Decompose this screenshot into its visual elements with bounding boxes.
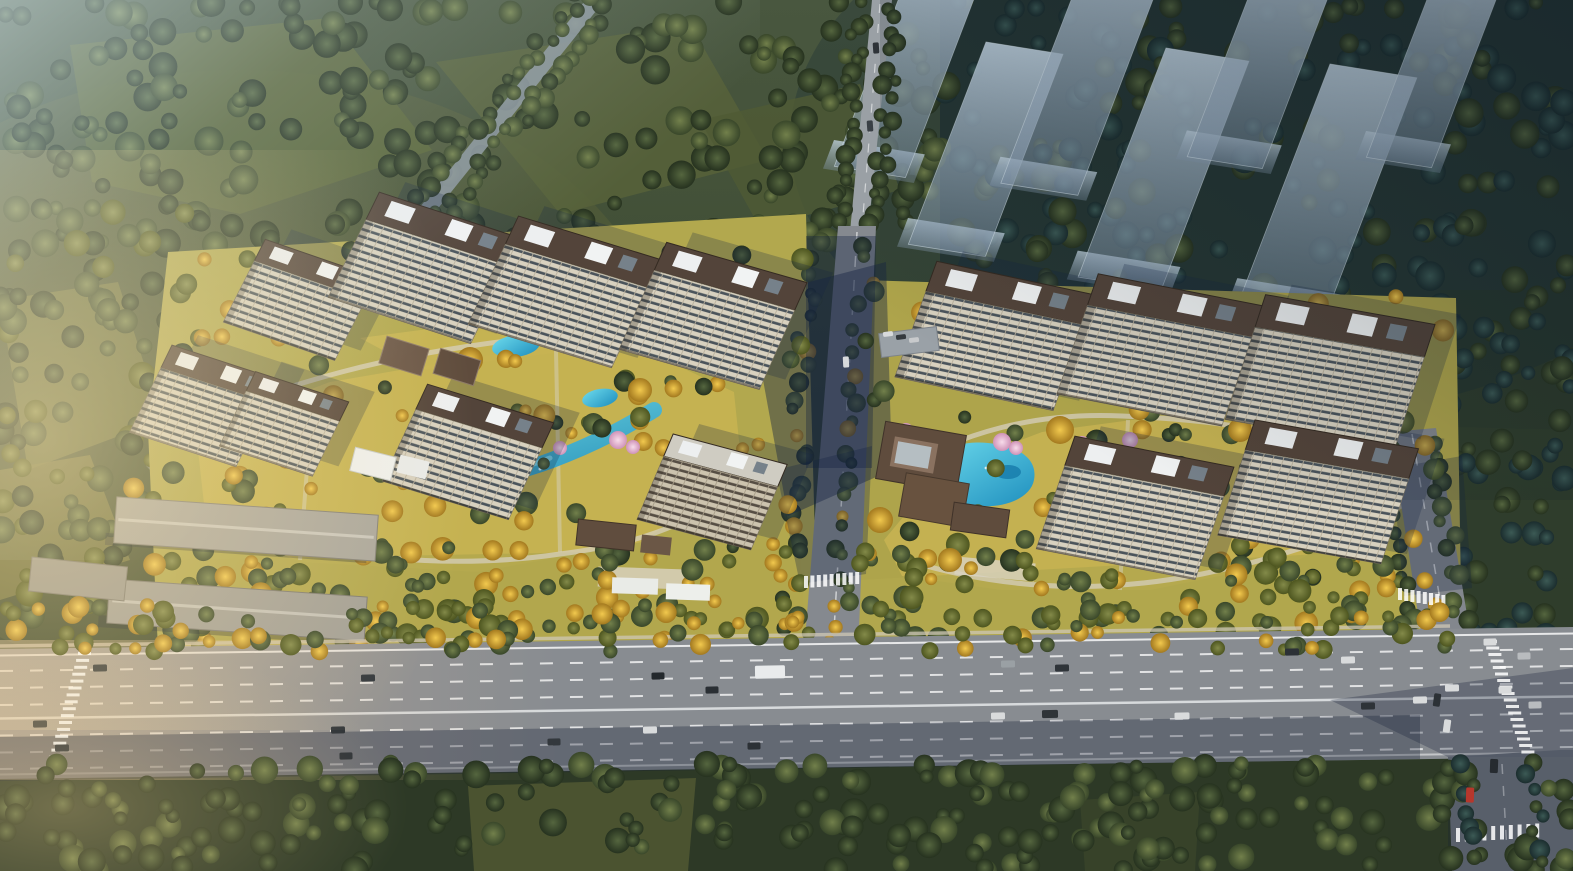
gold-tree (867, 507, 893, 533)
tree (1528, 783, 1541, 796)
tree (828, 600, 841, 613)
tree (433, 806, 452, 825)
crosswalk-stripe (1417, 591, 1421, 603)
tree (1512, 602, 1533, 623)
car (991, 712, 1005, 719)
crosswalk-stripe (1429, 593, 1433, 605)
tree (957, 640, 974, 657)
tree (1172, 757, 1199, 784)
tree (776, 596, 792, 612)
tree (656, 602, 677, 623)
tree (759, 145, 784, 170)
crosswalk-stripe (1506, 705, 1519, 708)
tree (1360, 809, 1386, 835)
car (547, 738, 560, 745)
tree (1210, 641, 1225, 656)
tree (1528, 565, 1544, 581)
tree (1230, 584, 1249, 603)
dark-topright (880, 0, 1573, 500)
tree (779, 147, 805, 173)
tree (782, 58, 799, 75)
tree (1536, 809, 1549, 822)
tree (1105, 568, 1119, 582)
tree (626, 833, 640, 847)
car (651, 672, 664, 679)
tree (854, 624, 876, 646)
tree (1500, 522, 1522, 544)
tree (1359, 772, 1377, 790)
car (843, 356, 850, 367)
tree (820, 20, 842, 42)
crosswalk-stripe (1513, 725, 1526, 728)
tree (708, 595, 722, 609)
car (1445, 684, 1459, 691)
tree (1137, 837, 1160, 860)
tree (1451, 754, 1470, 773)
tree (681, 559, 703, 581)
crosswalk-stripe (1491, 660, 1504, 663)
tree (775, 759, 799, 783)
tree (1533, 499, 1549, 515)
tree (851, 555, 869, 573)
crosswalk-stripe (1493, 666, 1506, 669)
crosswalk-stripe (855, 572, 859, 584)
tree (1539, 530, 1554, 545)
car (1001, 660, 1015, 667)
tree (695, 814, 715, 834)
tree (716, 824, 734, 842)
tree (1377, 578, 1396, 597)
tree (916, 832, 942, 858)
tree (1433, 805, 1451, 823)
tree (568, 622, 580, 634)
tree (1126, 609, 1140, 623)
tree (559, 574, 574, 589)
aerial-architectural-rendering (0, 0, 1573, 871)
canopy (666, 583, 711, 601)
tree (481, 822, 505, 846)
crosswalk-stripe (1488, 653, 1501, 656)
car (1341, 656, 1355, 663)
tree (1041, 824, 1059, 842)
tree (592, 603, 613, 624)
tree (921, 642, 938, 659)
tree (881, 618, 897, 634)
car (1361, 702, 1375, 709)
tree (1294, 796, 1308, 810)
tree (1430, 602, 1450, 622)
tree (900, 586, 924, 610)
tree (1129, 760, 1143, 774)
tree (1058, 573, 1071, 586)
tree (1335, 834, 1357, 856)
tree (840, 592, 859, 611)
tree (566, 604, 584, 622)
tree (1296, 758, 1315, 777)
car (1490, 759, 1498, 773)
crosswalk-stripe (1495, 673, 1508, 676)
tree (748, 625, 769, 646)
tree (1439, 846, 1464, 871)
tree (795, 800, 813, 818)
tree (604, 768, 625, 789)
car (1055, 664, 1069, 671)
tree (969, 786, 984, 801)
tree (1439, 631, 1455, 647)
crosswalk-stripe (1423, 592, 1427, 604)
tree (539, 809, 567, 837)
tree (1260, 589, 1276, 605)
tree (1236, 808, 1258, 830)
tree (1080, 600, 1101, 621)
tree (1378, 769, 1395, 786)
tree (1041, 605, 1060, 624)
tree (1327, 591, 1339, 603)
tree (722, 757, 737, 772)
crosswalk-stripe (830, 574, 834, 586)
crosswalk-stripe (1497, 679, 1510, 682)
crosswalk-stripe (1398, 588, 1402, 600)
tree (998, 826, 1019, 847)
tree (920, 770, 934, 784)
car (1528, 701, 1541, 708)
tree (892, 545, 910, 563)
tree (1196, 823, 1217, 844)
tree (925, 573, 937, 585)
tree (887, 824, 911, 848)
tree (974, 609, 993, 628)
tree (768, 89, 787, 108)
tree (1110, 762, 1132, 784)
tree (868, 803, 889, 824)
tree (905, 568, 924, 587)
tree (803, 754, 828, 779)
tree (1516, 764, 1535, 783)
tree (1315, 796, 1333, 814)
tree (955, 626, 970, 641)
tree (1121, 825, 1135, 839)
tree (1234, 756, 1248, 770)
tree (687, 616, 701, 630)
crosswalk-stripe (1510, 718, 1523, 721)
crosswalk-stripe (849, 573, 853, 585)
tree (1467, 850, 1482, 865)
tree (690, 634, 711, 655)
tree (772, 121, 801, 150)
tree (663, 776, 679, 792)
car (1285, 648, 1299, 655)
tree (568, 752, 594, 778)
car (705, 686, 718, 693)
tree (1145, 779, 1164, 798)
tree (858, 333, 874, 349)
tree (1070, 571, 1091, 592)
tree (1301, 623, 1315, 637)
tree (1018, 829, 1043, 854)
crosswalk-stripe (1521, 751, 1534, 754)
grass-patch (468, 778, 696, 871)
tree (638, 598, 652, 612)
tree (1331, 807, 1353, 829)
car (755, 665, 785, 679)
tree (1375, 836, 1392, 853)
crosswalk-stripe (1508, 712, 1521, 715)
tree (1260, 616, 1273, 629)
tree (845, 29, 857, 41)
tree (1128, 802, 1147, 821)
car (1042, 710, 1058, 718)
tree (1170, 616, 1183, 629)
tree (518, 784, 535, 801)
tree (670, 625, 687, 642)
tree (1259, 634, 1274, 649)
tree (1288, 579, 1312, 603)
crosswalk-stripe (1486, 647, 1499, 650)
tree (821, 94, 839, 112)
tree (1112, 611, 1125, 624)
tree (980, 762, 1005, 787)
tree (1227, 778, 1243, 794)
tree (1382, 611, 1394, 623)
crosswalk-stripe (1504, 699, 1517, 702)
car (1498, 686, 1511, 693)
tree (1151, 633, 1171, 653)
tree (819, 809, 845, 835)
crosswalk-stripe (1517, 738, 1530, 741)
tree (842, 772, 859, 789)
tree (1091, 626, 1104, 639)
car (1517, 652, 1530, 659)
tree (1354, 611, 1369, 626)
tree (486, 793, 504, 811)
tree (1228, 844, 1254, 870)
tree (736, 784, 762, 810)
scene-svg (0, 0, 1573, 871)
tree (653, 632, 669, 648)
crosswalk-stripe (810, 576, 814, 588)
tree (1003, 626, 1022, 645)
tree (1526, 825, 1538, 837)
tree (1303, 601, 1316, 614)
tree (841, 816, 864, 839)
car (1174, 712, 1189, 719)
crosswalk-stripe (1491, 826, 1495, 840)
car (747, 742, 760, 749)
tree (456, 835, 473, 852)
tree (783, 634, 799, 650)
crosswalk-stripe (823, 575, 827, 587)
tree (542, 620, 555, 633)
tree (765, 554, 782, 571)
tree (1216, 602, 1235, 621)
tree (943, 608, 960, 625)
crosswalk-stripe (817, 575, 821, 587)
tree (1060, 785, 1085, 810)
tree (767, 169, 794, 196)
tree (779, 545, 793, 559)
tree (1458, 610, 1479, 631)
tree (976, 547, 995, 566)
tree (787, 616, 800, 629)
tree (1536, 856, 1548, 868)
car (1483, 638, 1496, 645)
crosswalk-stripe (1519, 744, 1532, 747)
crosswalk-stripe (842, 573, 846, 585)
tree (694, 751, 720, 777)
tree (850, 99, 863, 112)
tree (1305, 641, 1319, 655)
tree (829, 620, 843, 634)
car (643, 726, 657, 733)
tree (1016, 530, 1035, 549)
tree (717, 780, 737, 800)
crosswalk-stripe (804, 576, 808, 588)
tree (540, 579, 556, 595)
car (873, 42, 880, 53)
tree (1108, 781, 1133, 806)
crosswalk-stripe (1500, 826, 1504, 840)
tree (1316, 828, 1338, 850)
tree (1330, 607, 1349, 626)
tree (1225, 575, 1237, 587)
tree (827, 187, 844, 204)
sun-glow-west (0, 150, 540, 730)
tree (1533, 603, 1555, 625)
tree (539, 759, 554, 774)
tree (1210, 807, 1228, 825)
tree (1073, 830, 1095, 852)
tree (900, 522, 920, 542)
tree (1070, 620, 1082, 632)
tree (964, 561, 978, 575)
tree (1464, 827, 1482, 845)
tree (838, 836, 858, 856)
gold-tree (938, 548, 962, 572)
tree (1040, 638, 1055, 653)
sun-glow-southwest (0, 660, 430, 871)
crosswalk-stripe (1404, 589, 1408, 601)
crosswalk-stripe (1456, 828, 1460, 842)
tree (791, 824, 809, 842)
tree (840, 174, 852, 186)
tree (1416, 572, 1433, 589)
tree (766, 537, 780, 551)
tree (1009, 781, 1030, 802)
car (1413, 696, 1427, 703)
tree (462, 761, 490, 789)
tree (1169, 786, 1195, 812)
car (1466, 787, 1475, 802)
crosswalk-stripe (1515, 731, 1528, 734)
tree (1268, 548, 1287, 567)
tree (732, 617, 744, 629)
tree (1540, 780, 1557, 797)
tree (797, 68, 822, 93)
tree (842, 83, 861, 102)
tree (1016, 552, 1033, 569)
tree (1259, 807, 1280, 828)
tree (873, 601, 890, 618)
tree (1188, 609, 1207, 628)
crosswalk-stripe (1410, 590, 1414, 602)
tree (813, 786, 830, 803)
crosswalk-stripe (1509, 825, 1513, 839)
canopy (612, 577, 659, 595)
tree (658, 798, 682, 822)
tree (955, 575, 973, 593)
tree (1034, 581, 1049, 596)
tree (838, 49, 854, 65)
car (867, 120, 874, 131)
tree (1197, 783, 1223, 809)
crosswalk-stripe (836, 574, 840, 586)
